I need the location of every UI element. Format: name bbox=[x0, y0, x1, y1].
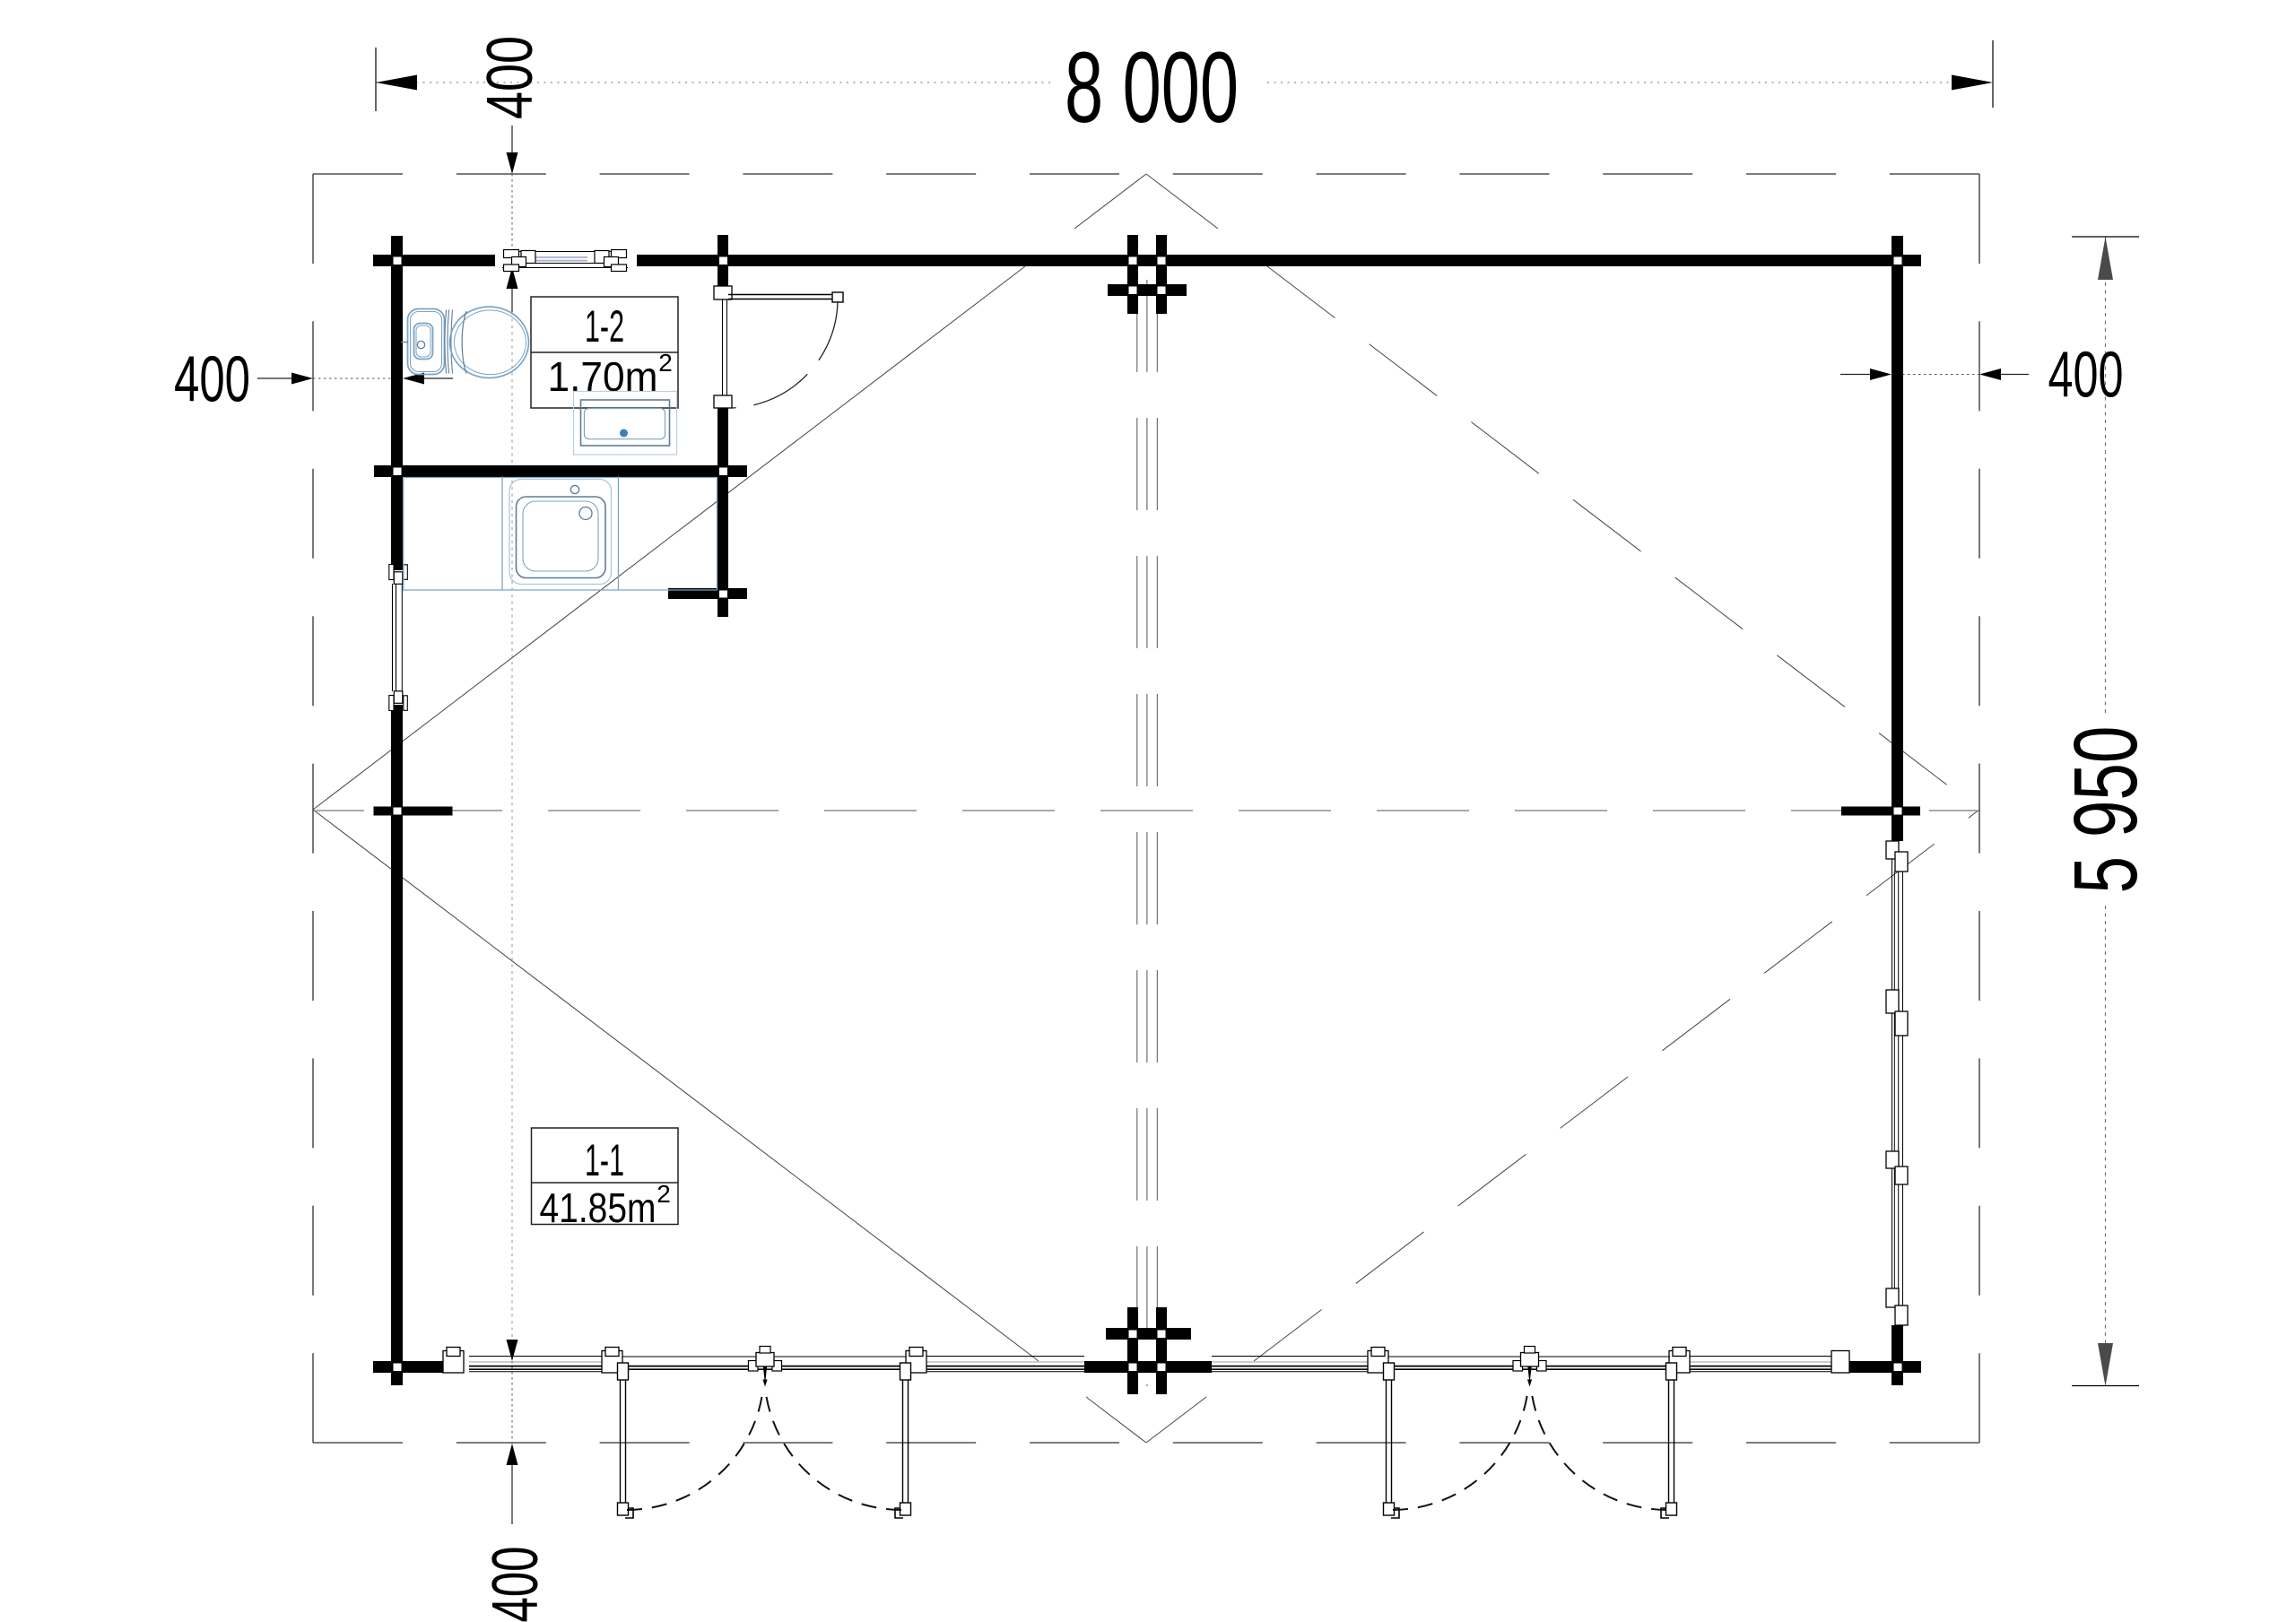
svg-text:400: 400 bbox=[480, 1547, 552, 1622]
svg-text:1-1: 1-1 bbox=[585, 1135, 624, 1185]
svg-text:2: 2 bbox=[657, 1180, 671, 1208]
svg-text:2: 2 bbox=[658, 349, 673, 377]
svg-text:400: 400 bbox=[2048, 340, 2124, 412]
svg-text:41.85m: 41.85m bbox=[540, 1184, 657, 1231]
svg-text:8 000: 8 000 bbox=[1065, 31, 1239, 143]
svg-text:1-2: 1-2 bbox=[585, 301, 624, 351]
svg-text:400: 400 bbox=[174, 344, 250, 416]
svg-text:5 950: 5 950 bbox=[2056, 726, 2156, 894]
svg-text:1.70m: 1.70m bbox=[548, 353, 658, 400]
svg-text:400: 400 bbox=[474, 36, 546, 119]
